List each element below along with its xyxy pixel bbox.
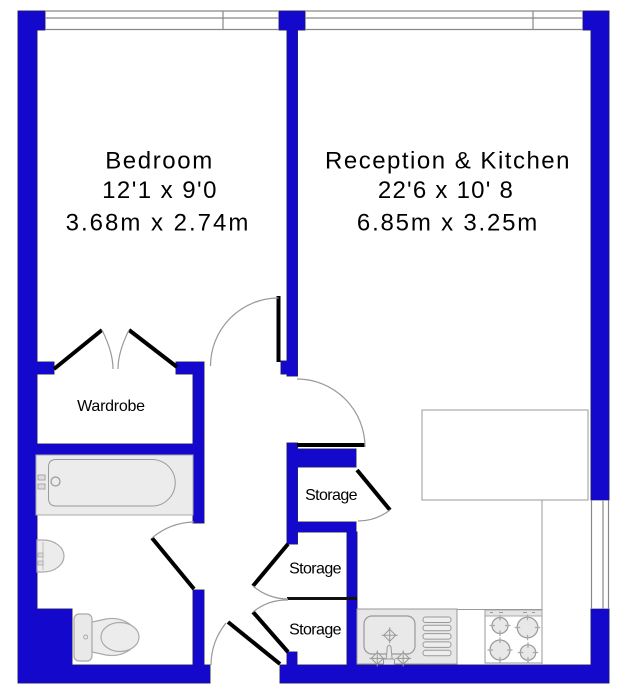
svg-text:Wardrobe: Wardrobe — [77, 398, 145, 415]
svg-text:3.68m x 2.74m: 3.68m x 2.74m — [66, 210, 251, 237]
svg-text:6.85m x 3.25m: 6.85m x 3.25m — [357, 210, 539, 237]
svg-text:22'6 x 10' 8: 22'6 x 10' 8 — [378, 177, 514, 204]
svg-text:12'1 x 9'0: 12'1 x 9'0 — [102, 177, 218, 204]
svg-text:Storage: Storage — [289, 561, 342, 578]
svg-text:Bedroom: Bedroom — [105, 148, 214, 175]
svg-text:Reception & Kitchen: Reception & Kitchen — [325, 148, 571, 175]
svg-text:Storage: Storage — [305, 487, 358, 504]
svg-text:Storage: Storage — [289, 622, 342, 639]
